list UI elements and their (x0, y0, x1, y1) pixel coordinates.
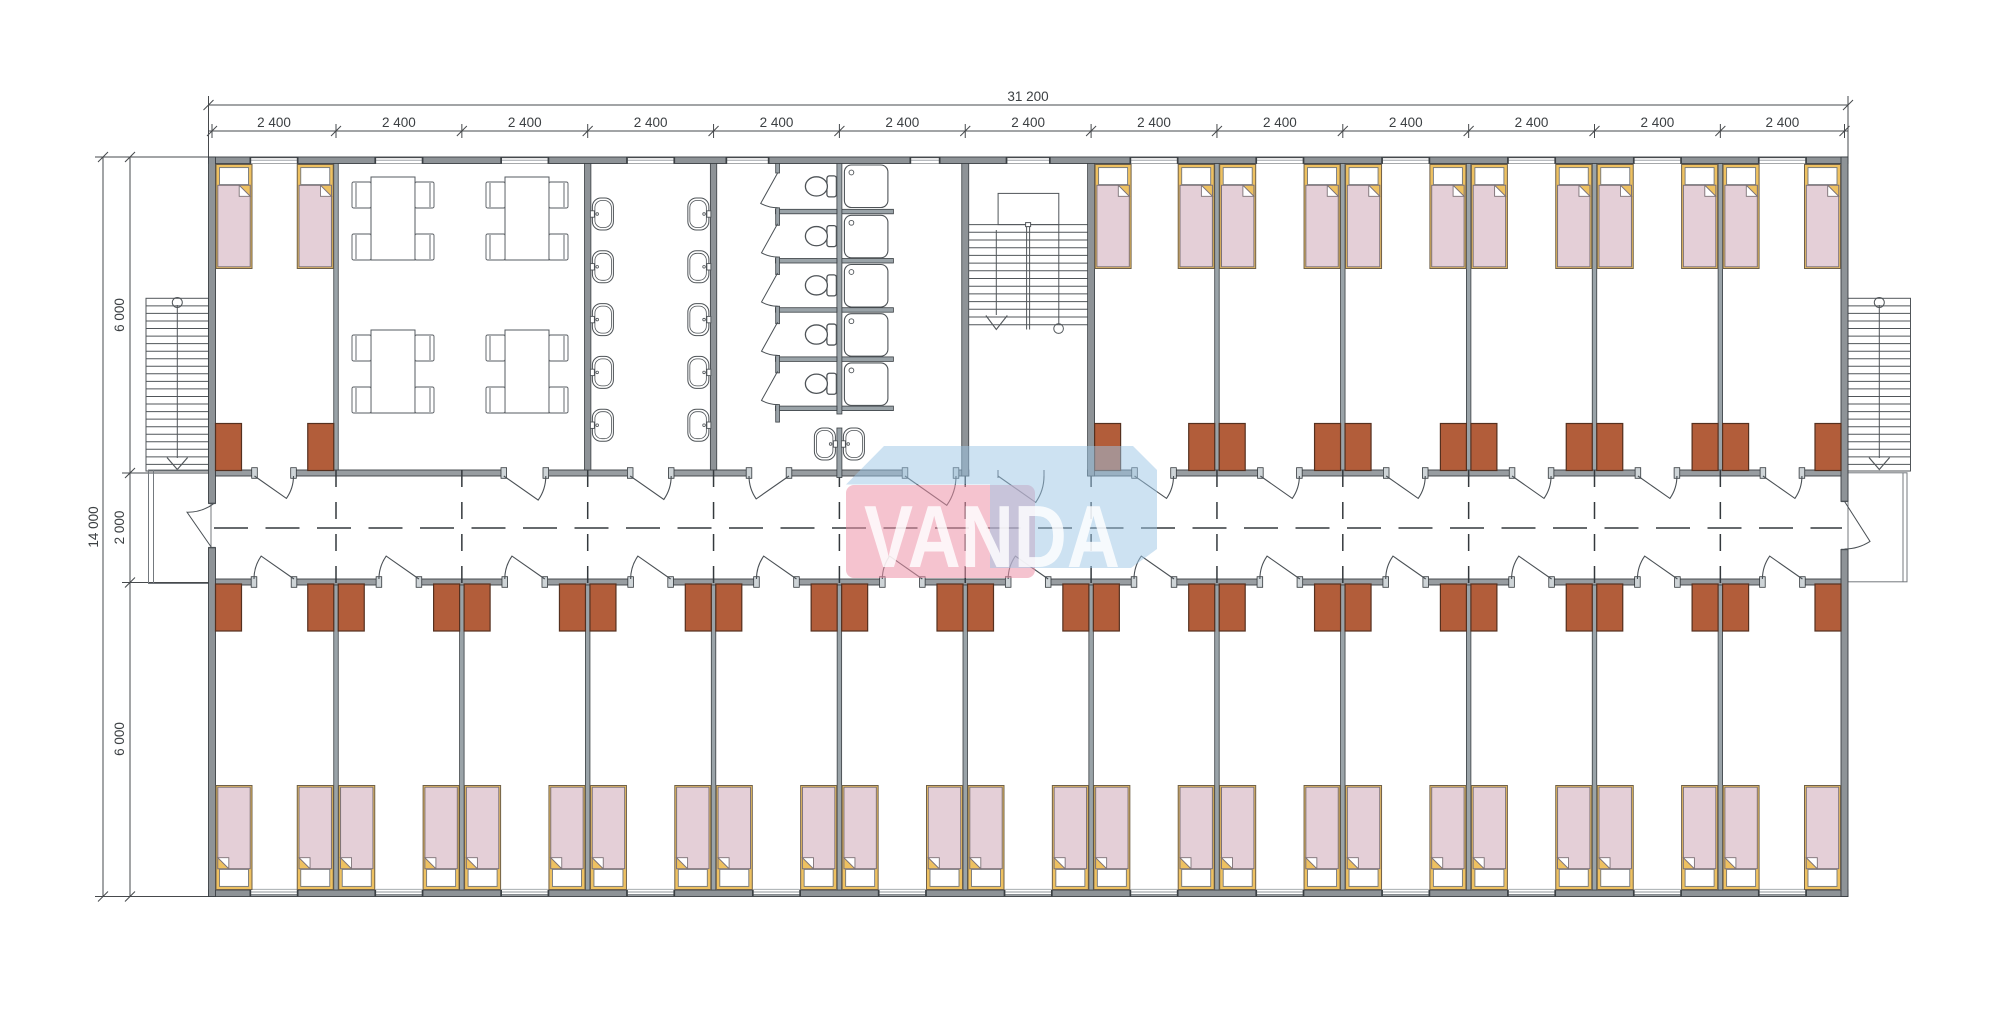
svg-text:VANDA: VANDA (864, 487, 1120, 586)
svg-text:2 400: 2 400 (885, 115, 919, 130)
svg-text:2 400: 2 400 (1263, 115, 1297, 130)
svg-text:2 400: 2 400 (508, 115, 542, 130)
svg-text:2 400: 2 400 (1137, 115, 1171, 130)
svg-text:2 400: 2 400 (1766, 115, 1800, 130)
svg-text:2 400: 2 400 (257, 115, 291, 130)
svg-text:14 000: 14 000 (86, 506, 101, 547)
svg-text:2 400: 2 400 (382, 115, 416, 130)
svg-text:31 200: 31 200 (1007, 89, 1048, 104)
svg-text:2 400: 2 400 (1515, 115, 1549, 130)
svg-text:2 000: 2 000 (112, 511, 127, 545)
svg-text:2 400: 2 400 (1389, 115, 1423, 130)
svg-text:2 400: 2 400 (634, 115, 668, 130)
svg-text:2 400: 2 400 (1011, 115, 1045, 130)
svg-text:6 000: 6 000 (112, 298, 127, 332)
svg-text:2 400: 2 400 (760, 115, 794, 130)
svg-text:2 400: 2 400 (1641, 115, 1675, 130)
svg-text:6 000: 6 000 (112, 722, 127, 756)
